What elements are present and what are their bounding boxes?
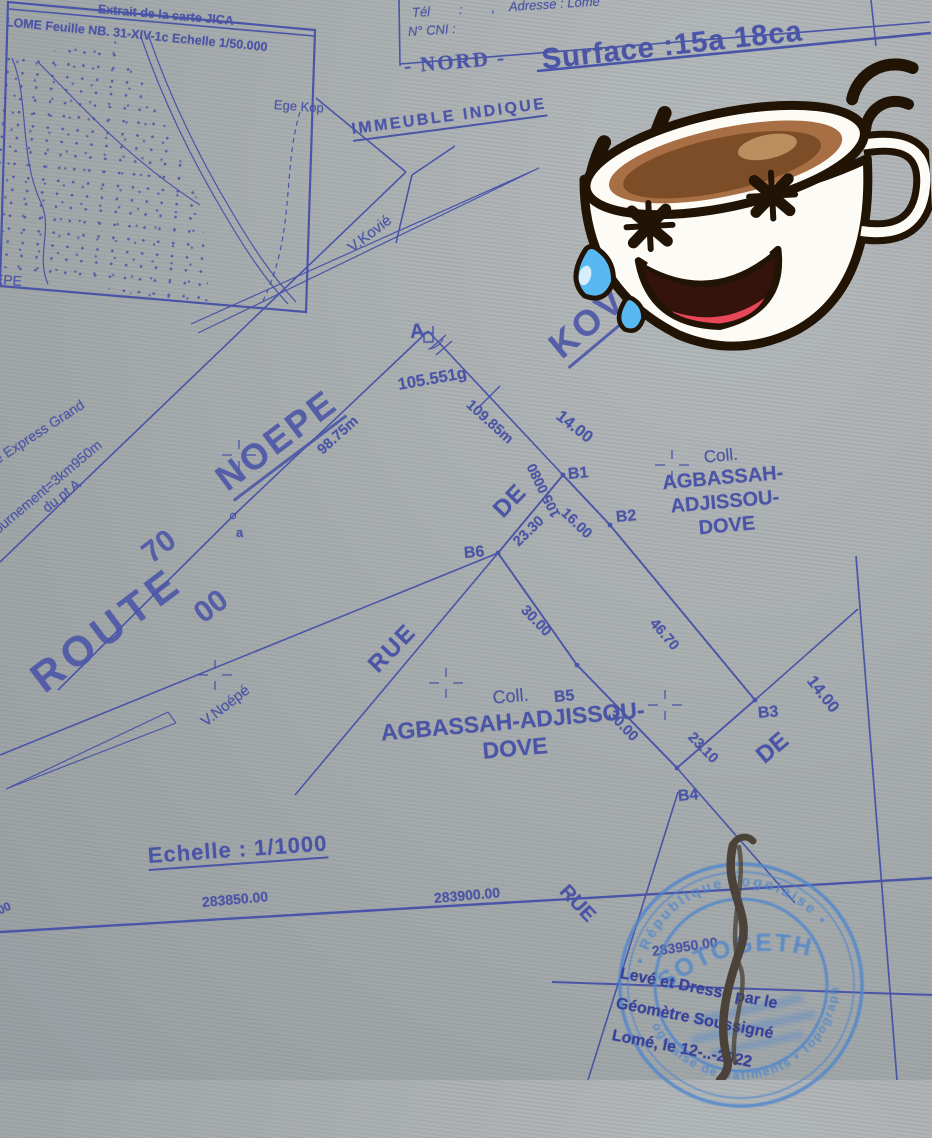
coffee-cup-emoji-sticker — [512, 37, 932, 390]
